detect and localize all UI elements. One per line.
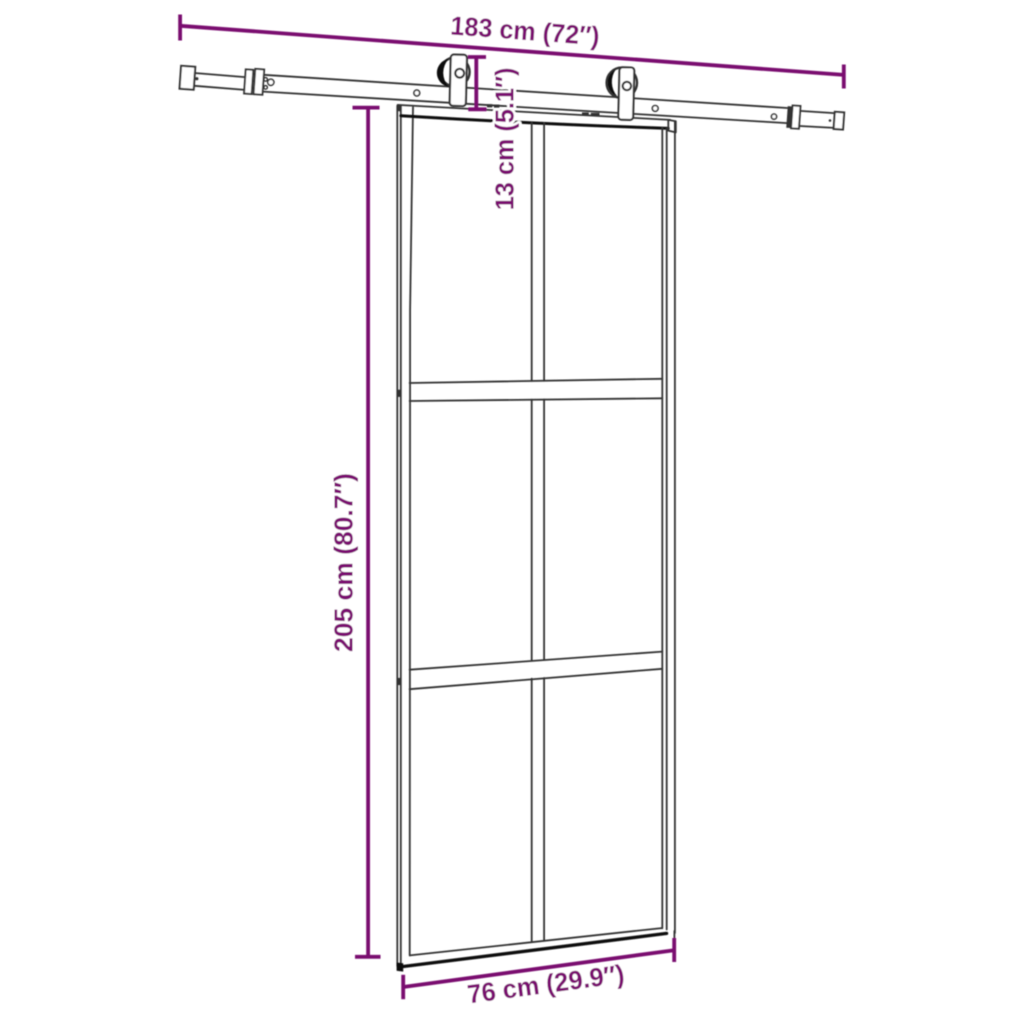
svg-text:205 cm (80.7″): 205 cm (80.7″) bbox=[329, 473, 359, 652]
svg-text:13 cm (5.1″): 13 cm (5.1″) bbox=[490, 68, 520, 211]
